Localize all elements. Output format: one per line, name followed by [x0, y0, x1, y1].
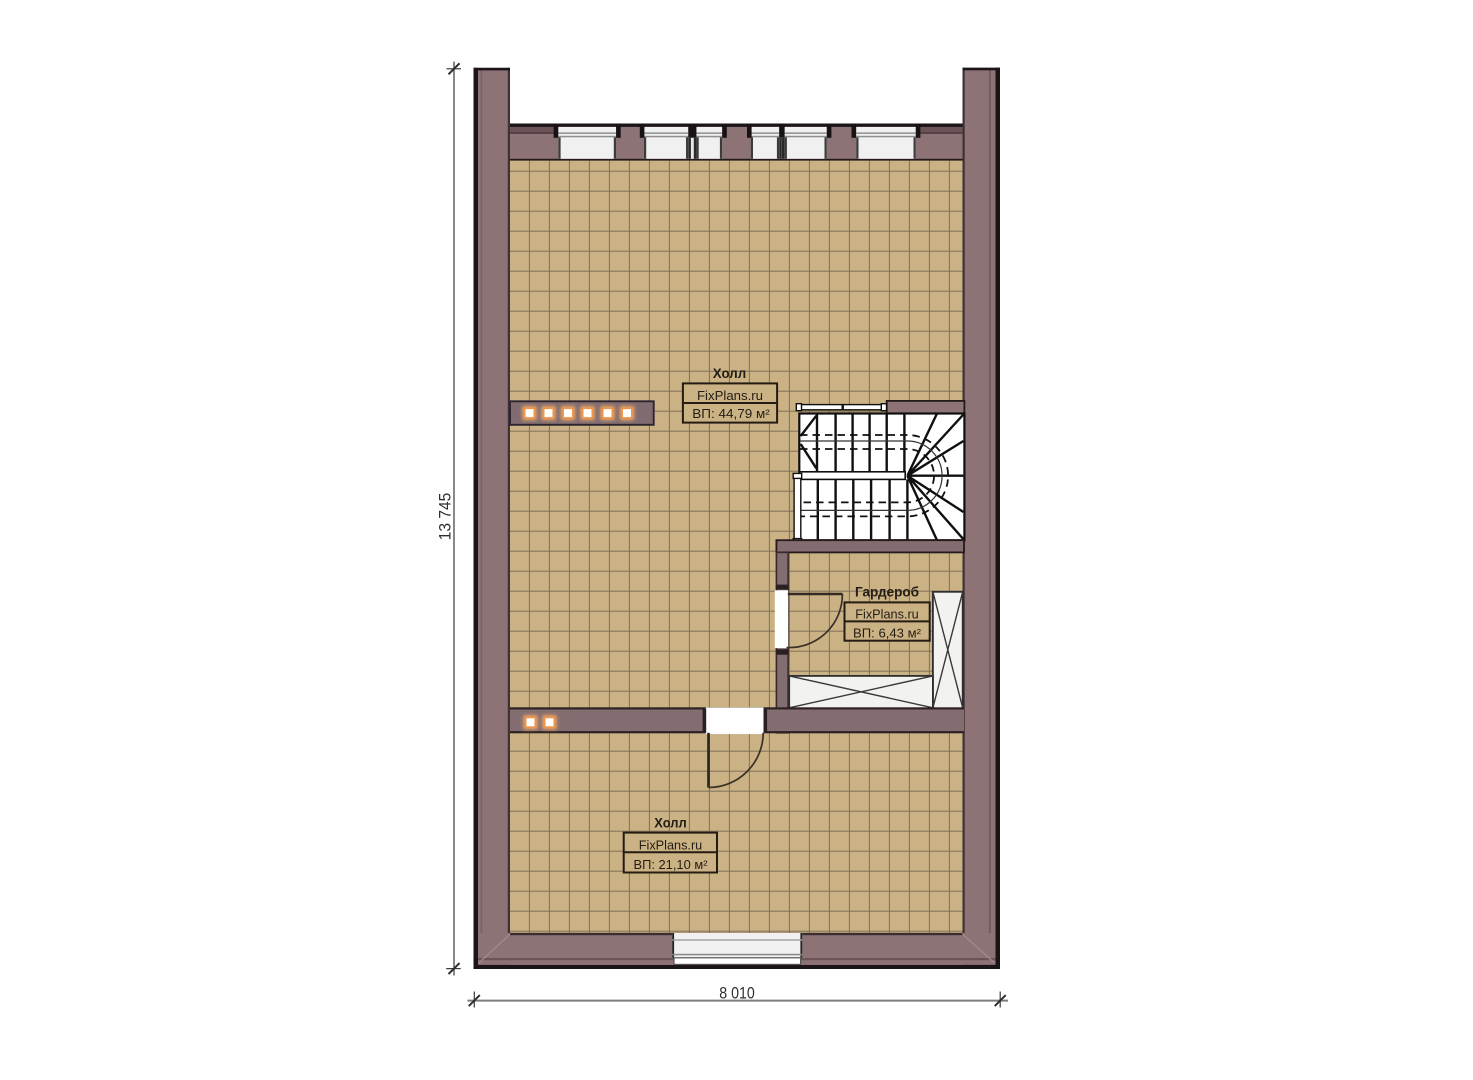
- svg-text:ВП: 6,43 м²: ВП: 6,43 м²: [853, 626, 922, 641]
- svg-text:FixPlans.ru: FixPlans.ru: [697, 388, 763, 403]
- svg-text:FixPlans.ru: FixPlans.ru: [855, 607, 919, 622]
- svg-text:13 745: 13 745: [437, 493, 455, 541]
- svg-text:ВП: 44,79 м²: ВП: 44,79 м²: [692, 406, 770, 421]
- svg-text:ВП: 21,10 м²: ВП: 21,10 м²: [634, 857, 709, 872]
- svg-text:8 010: 8 010: [719, 984, 755, 1002]
- svg-text:Гардероб: Гардероб: [855, 584, 919, 600]
- svg-text:Холл: Холл: [713, 365, 747, 381]
- svg-text:FixPlans.ru: FixPlans.ru: [639, 838, 703, 853]
- svg-text:Холл: Холл: [654, 815, 687, 831]
